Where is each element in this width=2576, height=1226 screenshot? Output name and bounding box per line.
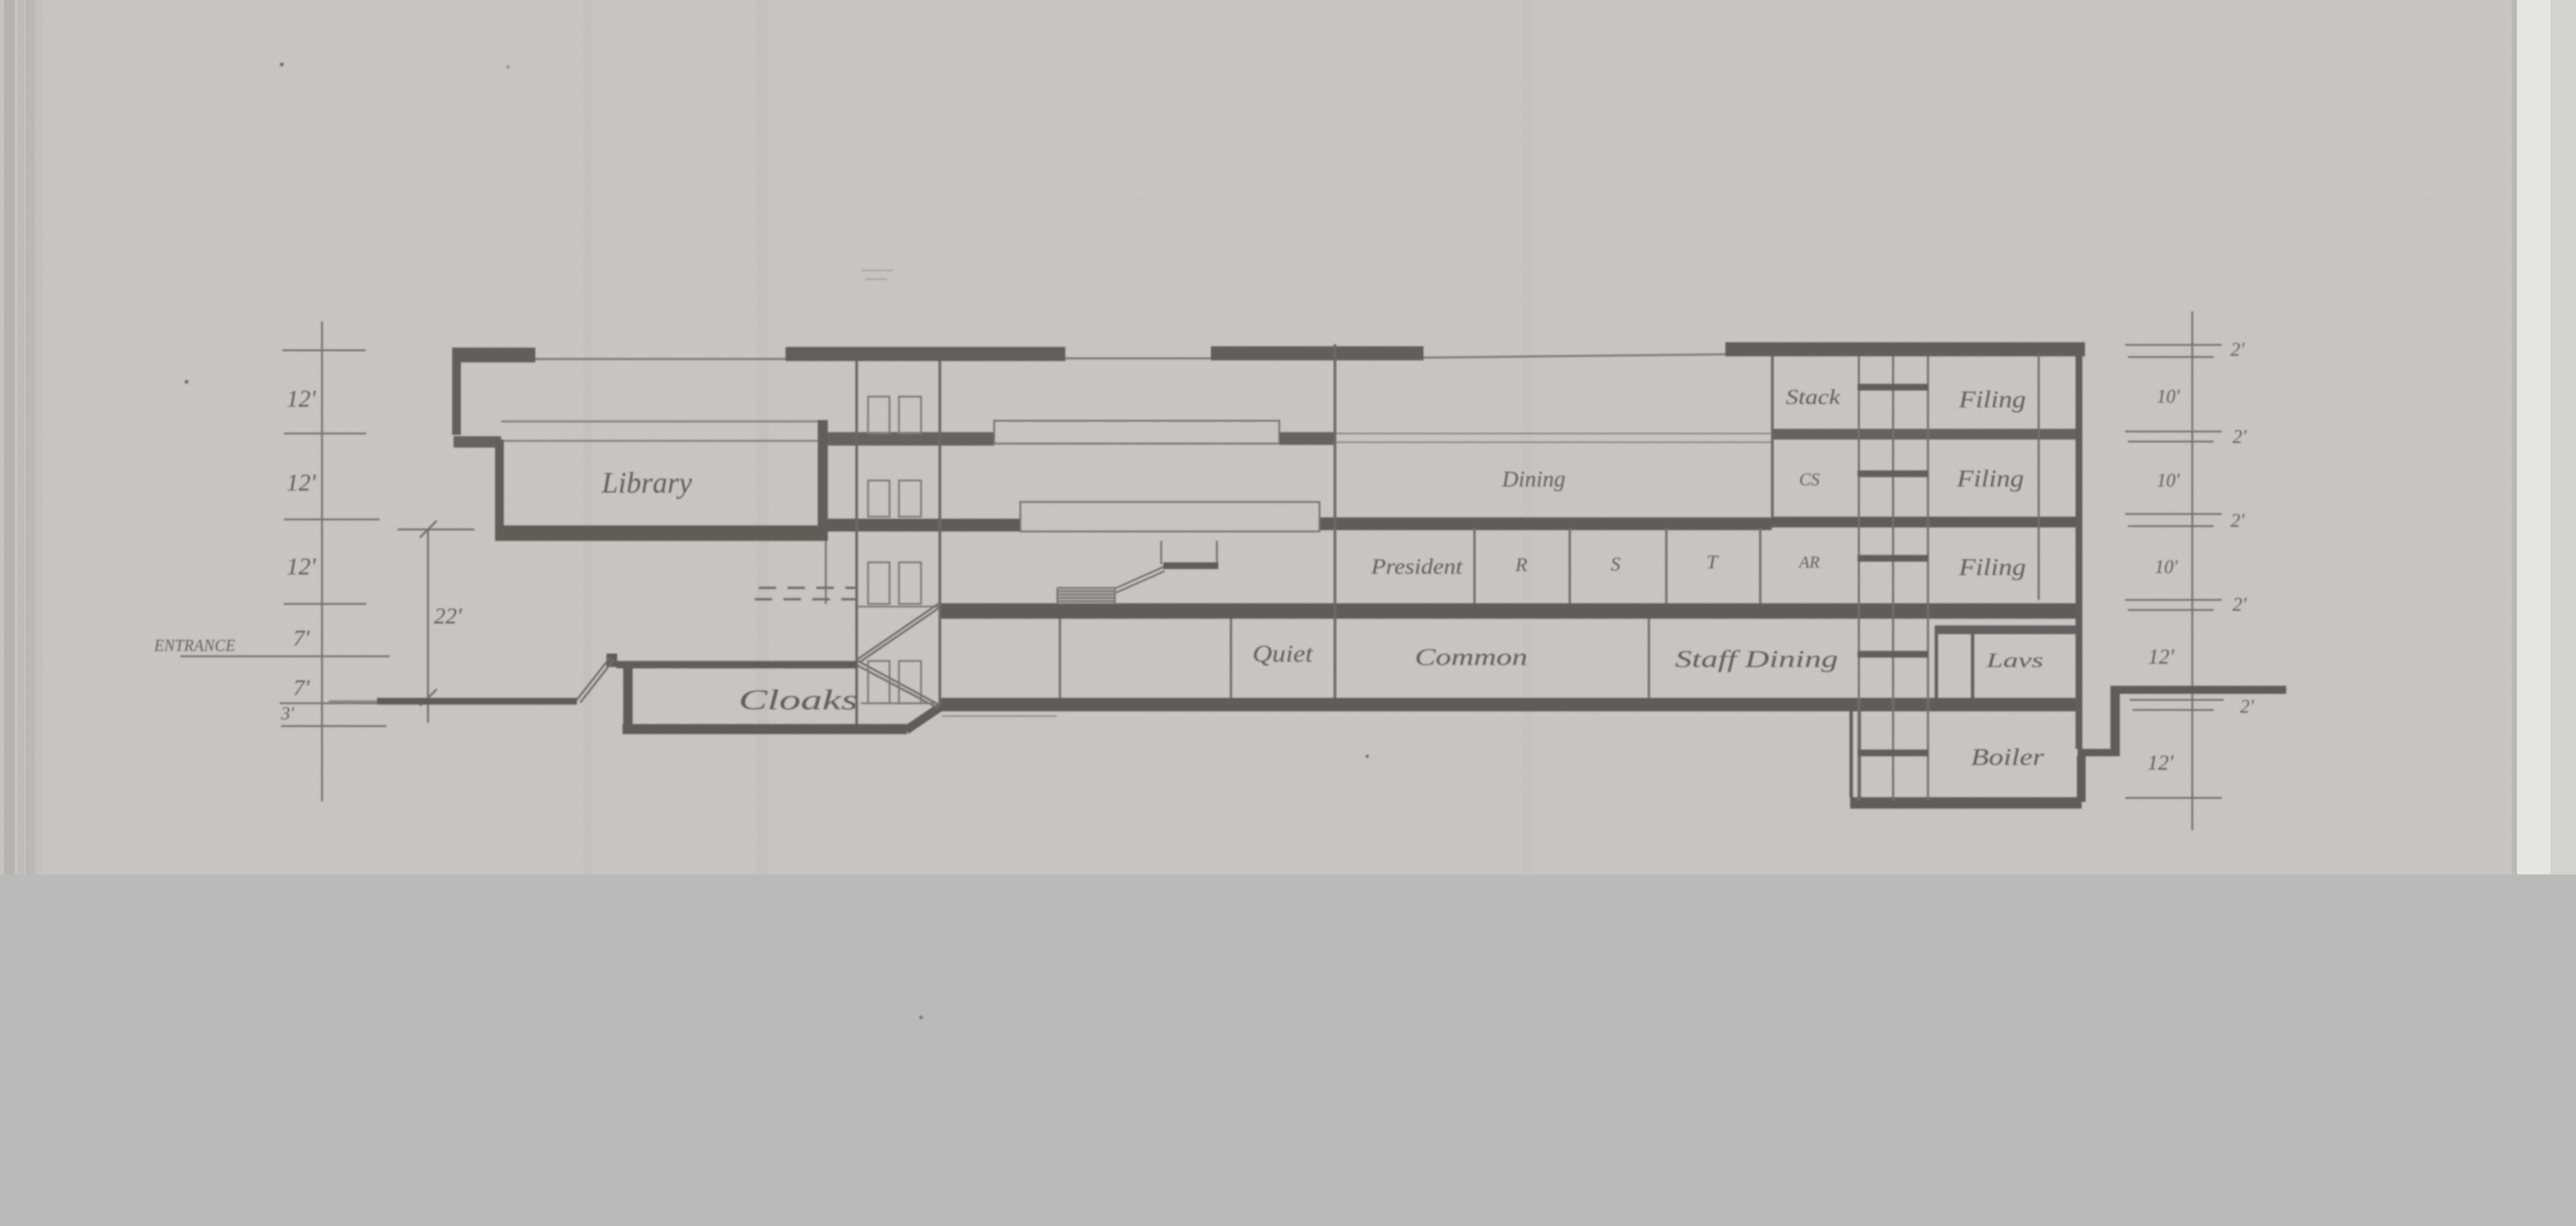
svg-text:2': 2': [2233, 594, 2247, 615]
svg-text:12': 12': [286, 385, 317, 412]
svg-text:10': 10': [2155, 557, 2178, 578]
svg-text:12': 12': [2147, 750, 2174, 774]
svg-text:3': 3': [280, 703, 295, 723]
svg-text:7': 7': [293, 676, 310, 701]
svg-text:7': 7': [293, 626, 310, 651]
svg-text:Library: Library: [601, 466, 692, 499]
svg-text:12': 12': [286, 553, 317, 580]
svg-text:Lavs: Lavs: [1986, 648, 2043, 672]
svg-text:Staff Dining: Staff Dining: [1675, 646, 1838, 672]
svg-text:2': 2': [2240, 696, 2255, 717]
svg-text:R: R: [1515, 554, 1527, 576]
svg-text:22': 22': [434, 604, 462, 629]
svg-text:Dining: Dining: [1501, 467, 1565, 492]
svg-text:Common: Common: [1415, 644, 1527, 670]
svg-text:Quiet: Quiet: [1252, 640, 1313, 667]
svg-text:2': 2': [2231, 339, 2245, 360]
svg-text:S: S: [1611, 554, 1621, 575]
svg-text:2': 2': [2233, 426, 2247, 448]
svg-text:President: President: [1371, 555, 1463, 579]
svg-text:2': 2': [2231, 510, 2245, 531]
svg-text:Cloaks: Cloaks: [739, 685, 858, 716]
svg-text:12': 12': [2148, 644, 2175, 668]
svg-text:Filing: Filing: [1958, 386, 2026, 413]
svg-text:Boiler: Boiler: [1971, 744, 2045, 770]
svg-text:12': 12': [286, 469, 317, 496]
svg-text:ENTRANCE: ENTRANCE: [154, 637, 235, 655]
svg-text:Stack: Stack: [1786, 385, 1841, 409]
svg-text:AR: AR: [1798, 554, 1820, 572]
svg-text:10': 10': [2157, 387, 2180, 407]
svg-text:Filing: Filing: [1956, 465, 2024, 492]
svg-text:10': 10': [2157, 470, 2180, 491]
svg-text:Filing: Filing: [1958, 554, 2026, 580]
svg-text:T: T: [1707, 552, 1719, 573]
svg-text:CS: CS: [1799, 470, 1819, 489]
